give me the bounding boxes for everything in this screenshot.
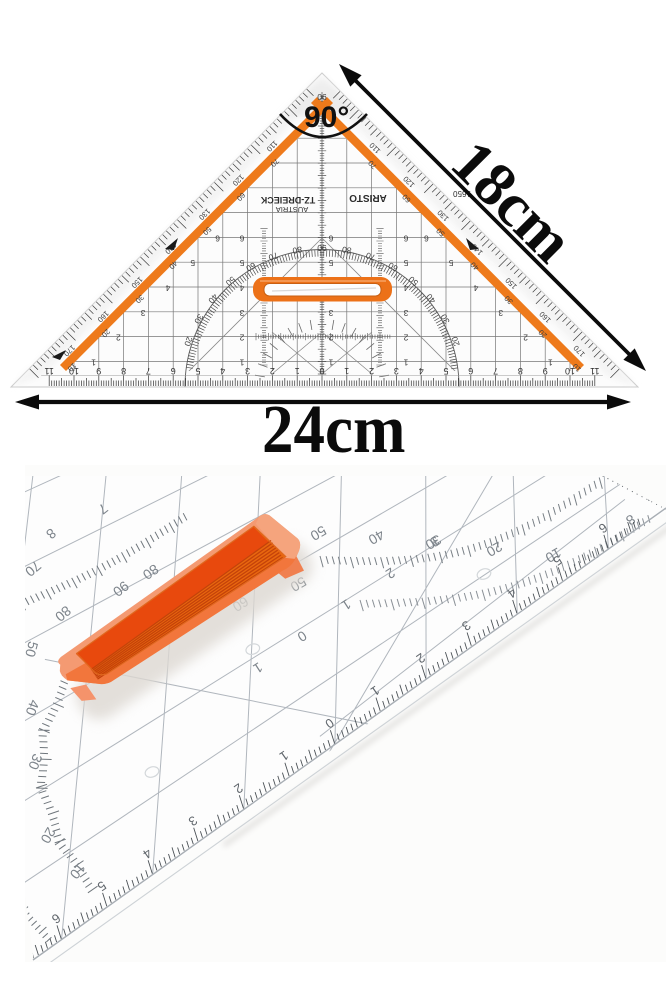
svg-text:5: 5 xyxy=(443,366,448,376)
svg-text:4: 4 xyxy=(473,283,478,293)
svg-text:3: 3 xyxy=(239,308,244,318)
svg-text:6: 6 xyxy=(468,366,473,376)
svg-text:6: 6 xyxy=(424,233,429,243)
svg-text:90: 90 xyxy=(317,243,327,253)
svg-text:4: 4 xyxy=(220,366,225,376)
svg-text:9: 9 xyxy=(543,366,548,376)
svg-text:3: 3 xyxy=(328,308,333,318)
svg-text:2: 2 xyxy=(369,366,374,376)
svg-text:5: 5 xyxy=(190,258,195,268)
svg-text:1: 1 xyxy=(344,366,349,376)
svg-text:5: 5 xyxy=(403,258,408,268)
svg-text:3: 3 xyxy=(141,308,146,318)
svg-text:9: 9 xyxy=(96,366,101,376)
svg-text:2: 2 xyxy=(328,333,333,343)
svg-text:1: 1 xyxy=(548,357,553,367)
svg-text:4: 4 xyxy=(165,283,170,293)
svg-text:AUSTRIA: AUSTRIA xyxy=(276,205,309,214)
svg-text:4: 4 xyxy=(419,366,424,376)
svg-text:1: 1 xyxy=(239,357,244,367)
svg-text:3: 3 xyxy=(245,366,250,376)
svg-text:3: 3 xyxy=(403,308,408,318)
svg-text:5: 5 xyxy=(239,258,244,268)
svg-text:8: 8 xyxy=(518,366,523,376)
svg-text:2: 2 xyxy=(523,333,528,343)
svg-text:2: 2 xyxy=(116,333,121,343)
svg-text:2: 2 xyxy=(239,333,244,343)
svg-text:3: 3 xyxy=(394,366,399,376)
svg-text:4: 4 xyxy=(403,283,408,293)
svg-text:80: 80 xyxy=(341,244,352,256)
svg-text:7: 7 xyxy=(493,366,498,376)
svg-text:5: 5 xyxy=(449,258,454,268)
svg-text:11: 11 xyxy=(45,366,54,376)
svg-text:5: 5 xyxy=(195,366,200,376)
svg-text:8: 8 xyxy=(121,366,126,376)
svg-text:6: 6 xyxy=(239,233,244,243)
svg-text:1: 1 xyxy=(328,357,333,367)
svg-text:2: 2 xyxy=(270,366,275,376)
svg-text:TZ-DREIECK: TZ-DREIECK xyxy=(260,195,315,205)
svg-text:24cm: 24cm xyxy=(262,391,405,467)
svg-text:4: 4 xyxy=(239,283,244,293)
svg-text:5: 5 xyxy=(328,258,333,268)
svg-text:11: 11 xyxy=(590,366,599,376)
svg-text:1: 1 xyxy=(295,366,300,376)
svg-text:2: 2 xyxy=(403,333,408,343)
svg-text:0: 0 xyxy=(319,366,324,376)
svg-text:1: 1 xyxy=(403,357,408,367)
svg-text:90°: 90° xyxy=(304,101,349,134)
svg-text:7: 7 xyxy=(146,366,151,376)
svg-text:ARISTO: ARISTO xyxy=(349,192,387,203)
svg-text:3: 3 xyxy=(498,308,503,318)
svg-text:1: 1 xyxy=(91,357,96,367)
svg-text:6: 6 xyxy=(328,233,333,243)
svg-text:80: 80 xyxy=(292,244,303,256)
svg-text:6: 6 xyxy=(171,366,176,376)
svg-text:6: 6 xyxy=(215,233,220,243)
svg-text:6: 6 xyxy=(403,233,408,243)
